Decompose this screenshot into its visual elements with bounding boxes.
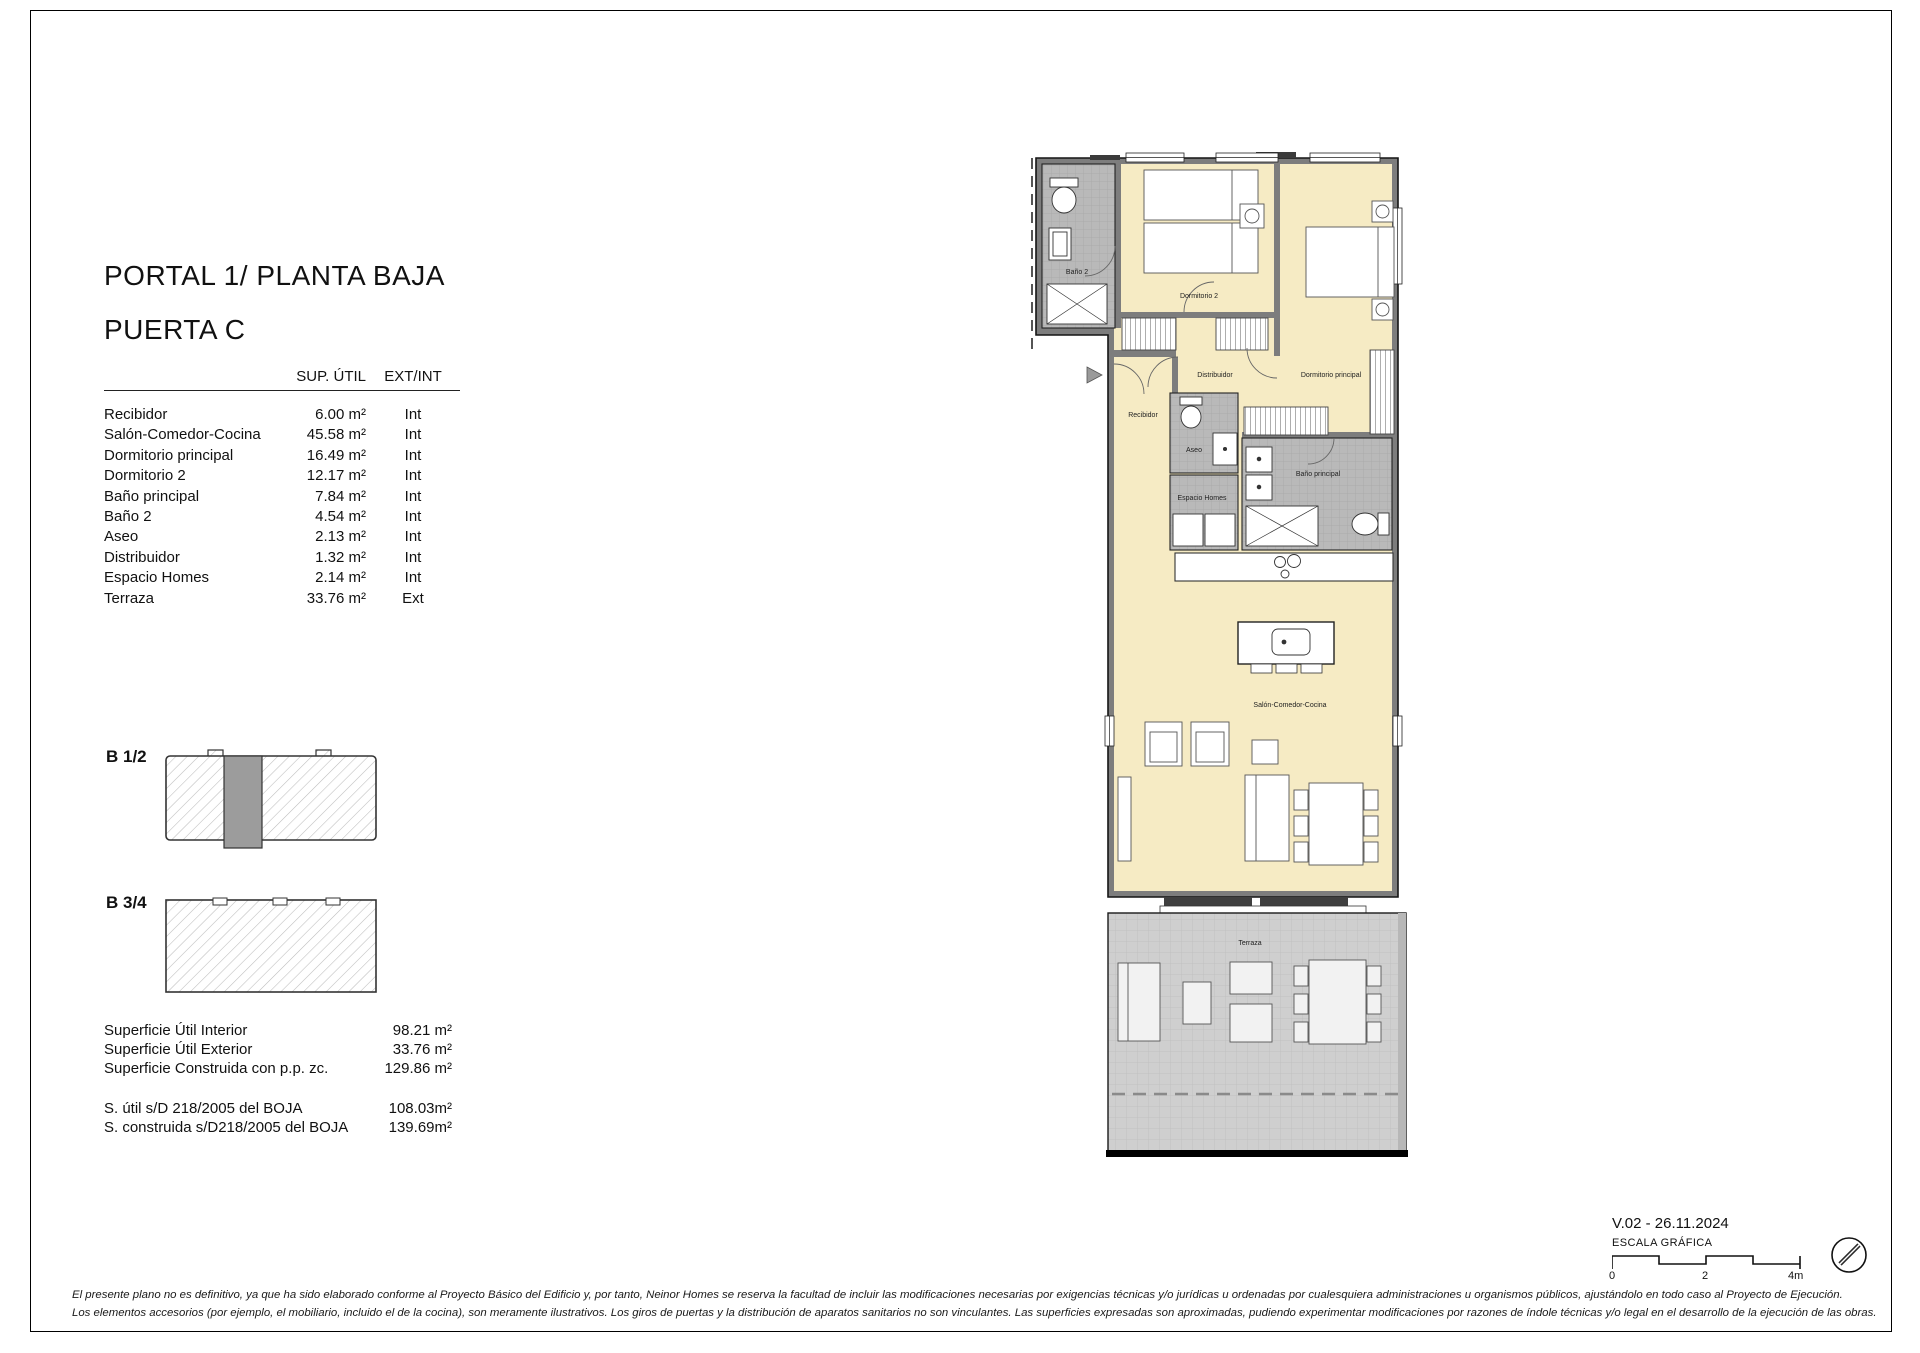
key-plan-1 xyxy=(158,740,390,870)
boja-summary: S. útil s/D 218/2005 del BOJA108.03m² S.… xyxy=(104,1100,452,1138)
room-label-bano-principal: Baño principal xyxy=(1296,471,1341,478)
area-row: Salón-Comedor-Cocina45.58 m²Int xyxy=(104,425,460,445)
floor-plan: Baño 2 Dormitorio 2 Distribuidor Dormito… xyxy=(1028,150,1418,1170)
key-plan-2 xyxy=(158,888,390,1006)
boja-row: S. útil s/D 218/2005 del BOJA108.03m² xyxy=(104,1100,452,1119)
summary-row: Superficie Útil Interior98.21 m² xyxy=(104,1022,452,1041)
area-row: Terraza33.76 m²Ext xyxy=(104,589,460,609)
room-label-distribuidor: Distribuidor xyxy=(1197,372,1233,379)
summary-row: Superficie Construida con p.p. zc.129.86… xyxy=(104,1060,452,1079)
area-table: SUP. ÚTIL EXT/INT Recibidor6.00 m²Int Sa… xyxy=(104,368,460,609)
area-table-body: Recibidor6.00 m²Int Salón-Comedor-Cocina… xyxy=(104,405,460,609)
area-row: Dormitorio 212.17 m²Int xyxy=(104,466,460,486)
unit-location-marker xyxy=(224,756,262,848)
room-label-dormitorio-principal: Dormitorio principal xyxy=(1301,372,1362,379)
version-date: V.02 - 26.11.2024 xyxy=(1612,1215,1729,1232)
boja-row: S. construida s/D218/2005 del BOJA139.69… xyxy=(104,1119,452,1138)
disclaimer-line-1: El presente plano no es definitivo, ya q… xyxy=(72,1287,1858,1305)
page-subtitle: PUERTA C xyxy=(104,314,245,346)
room-label-aseo: Aseo xyxy=(1186,447,1202,454)
north-compass-icon xyxy=(1826,1232,1872,1278)
col-ext-int: EXT/INT xyxy=(366,368,460,385)
room-label-dormitorio2: Dormitorio 2 xyxy=(1180,293,1218,300)
key-plan-1-label: B 1/2 xyxy=(106,747,147,767)
scale-bar xyxy=(1612,1252,1812,1272)
room-label-terraza: Terraza xyxy=(1238,940,1261,947)
area-row: Dormitorio principal16.49 m²Int xyxy=(104,446,460,466)
scale-label: ESCALA GRÁFICA xyxy=(1612,1237,1712,1249)
scale-tick-2: 2 xyxy=(1702,1270,1708,1282)
room-label-salon: Salón-Comedor-Cocina xyxy=(1253,702,1326,709)
room-label-espacio-homes: Espacio Homes xyxy=(1177,495,1227,502)
room-label-recibidor: Recibidor xyxy=(1128,412,1158,419)
page-title: PORTAL 1/ PLANTA BAJA xyxy=(104,260,445,292)
surface-summary: Superficie Útil Interior98.21 m² Superfi… xyxy=(104,1022,452,1078)
scale-tick-4m: 4m xyxy=(1788,1270,1803,1282)
area-row: Distribuidor1.32 m²Int xyxy=(104,548,460,568)
area-row: Espacio Homes2.14 m²Int xyxy=(104,568,460,588)
area-row: Aseo2.13 m²Int xyxy=(104,527,460,547)
disclaimer: El presente plano no es definitivo, ya q… xyxy=(72,1287,1858,1322)
key-plan-2-label: B 3/4 xyxy=(106,893,147,913)
area-row: Baño principal7.84 m²Int xyxy=(104,487,460,507)
area-row: Baño 24.54 m²Int xyxy=(104,507,460,527)
area-table-header: SUP. ÚTIL EXT/INT xyxy=(104,368,460,391)
scale-tick-0: 0 xyxy=(1609,1270,1615,1282)
room-label-bano2: Baño 2 xyxy=(1066,269,1088,276)
entry-arrow-icon xyxy=(1087,367,1102,383)
area-row: Recibidor6.00 m²Int xyxy=(104,405,460,425)
summary-row: Superficie Útil Exterior33.76 m² xyxy=(104,1041,452,1060)
terrace xyxy=(1106,897,1408,1157)
col-sup-util: SUP. ÚTIL xyxy=(284,368,366,385)
disclaimer-line-2: Los elementos accesorios (por ejemplo, e… xyxy=(72,1305,1858,1323)
